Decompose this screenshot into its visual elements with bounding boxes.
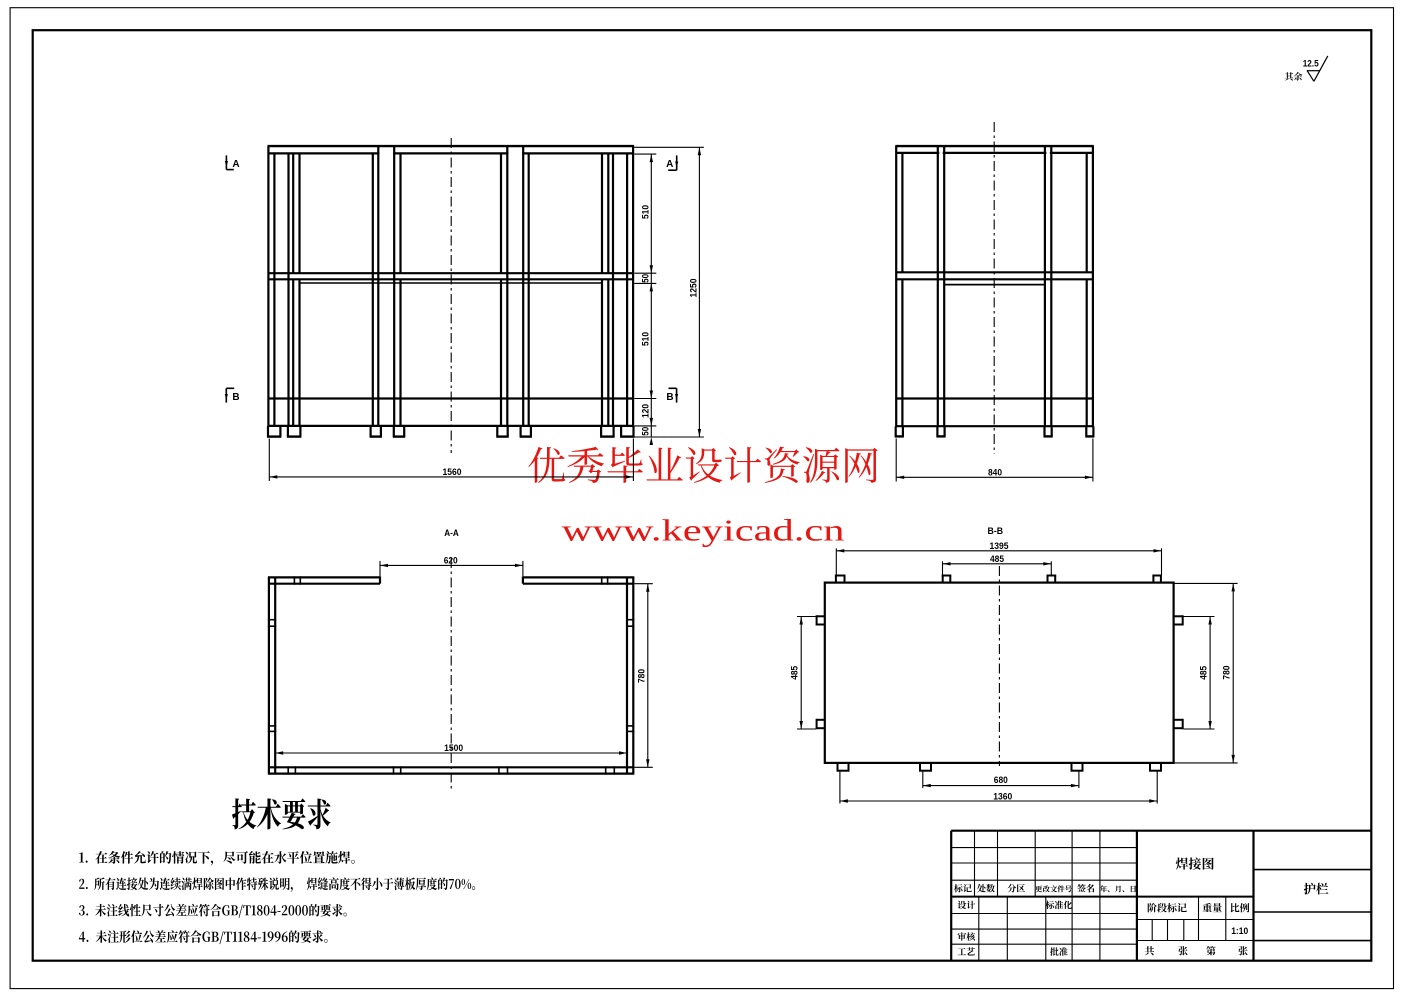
svg-text:B: B [232, 392, 239, 403]
svg-text:B-B: B-B [988, 526, 1004, 537]
svg-text:B: B [666, 392, 673, 403]
svg-text:A-A: A-A [444, 528, 459, 539]
svg-text:12.5: 12.5 [1303, 59, 1319, 69]
svg-text:840: 840 [988, 467, 1002, 478]
svg-text:50: 50 [641, 427, 652, 436]
svg-text:50: 50 [641, 274, 652, 283]
svg-text:510: 510 [641, 332, 652, 346]
svg-text:510: 510 [641, 205, 652, 219]
svg-text:485: 485 [1198, 665, 1209, 680]
svg-text:780: 780 [636, 669, 647, 683]
svg-text:1560: 1560 [443, 467, 462, 478]
svg-text:www.keyicad.cn: www.keyicad.cn [562, 513, 846, 548]
svg-text:A: A [666, 159, 673, 170]
svg-text:1360: 1360 [993, 791, 1012, 802]
svg-text:1500: 1500 [444, 743, 463, 754]
svg-text:1395: 1395 [990, 541, 1010, 552]
svg-text:485: 485 [790, 665, 801, 680]
svg-text:780: 780 [1222, 666, 1233, 680]
svg-text:1:10: 1:10 [1231, 926, 1248, 936]
svg-text:A: A [232, 159, 239, 170]
svg-text:120: 120 [641, 404, 652, 418]
svg-text:485: 485 [990, 554, 1005, 565]
svg-text:620: 620 [444, 556, 458, 567]
svg-text:1250: 1250 [689, 279, 700, 298]
svg-text:680: 680 [994, 775, 1008, 786]
